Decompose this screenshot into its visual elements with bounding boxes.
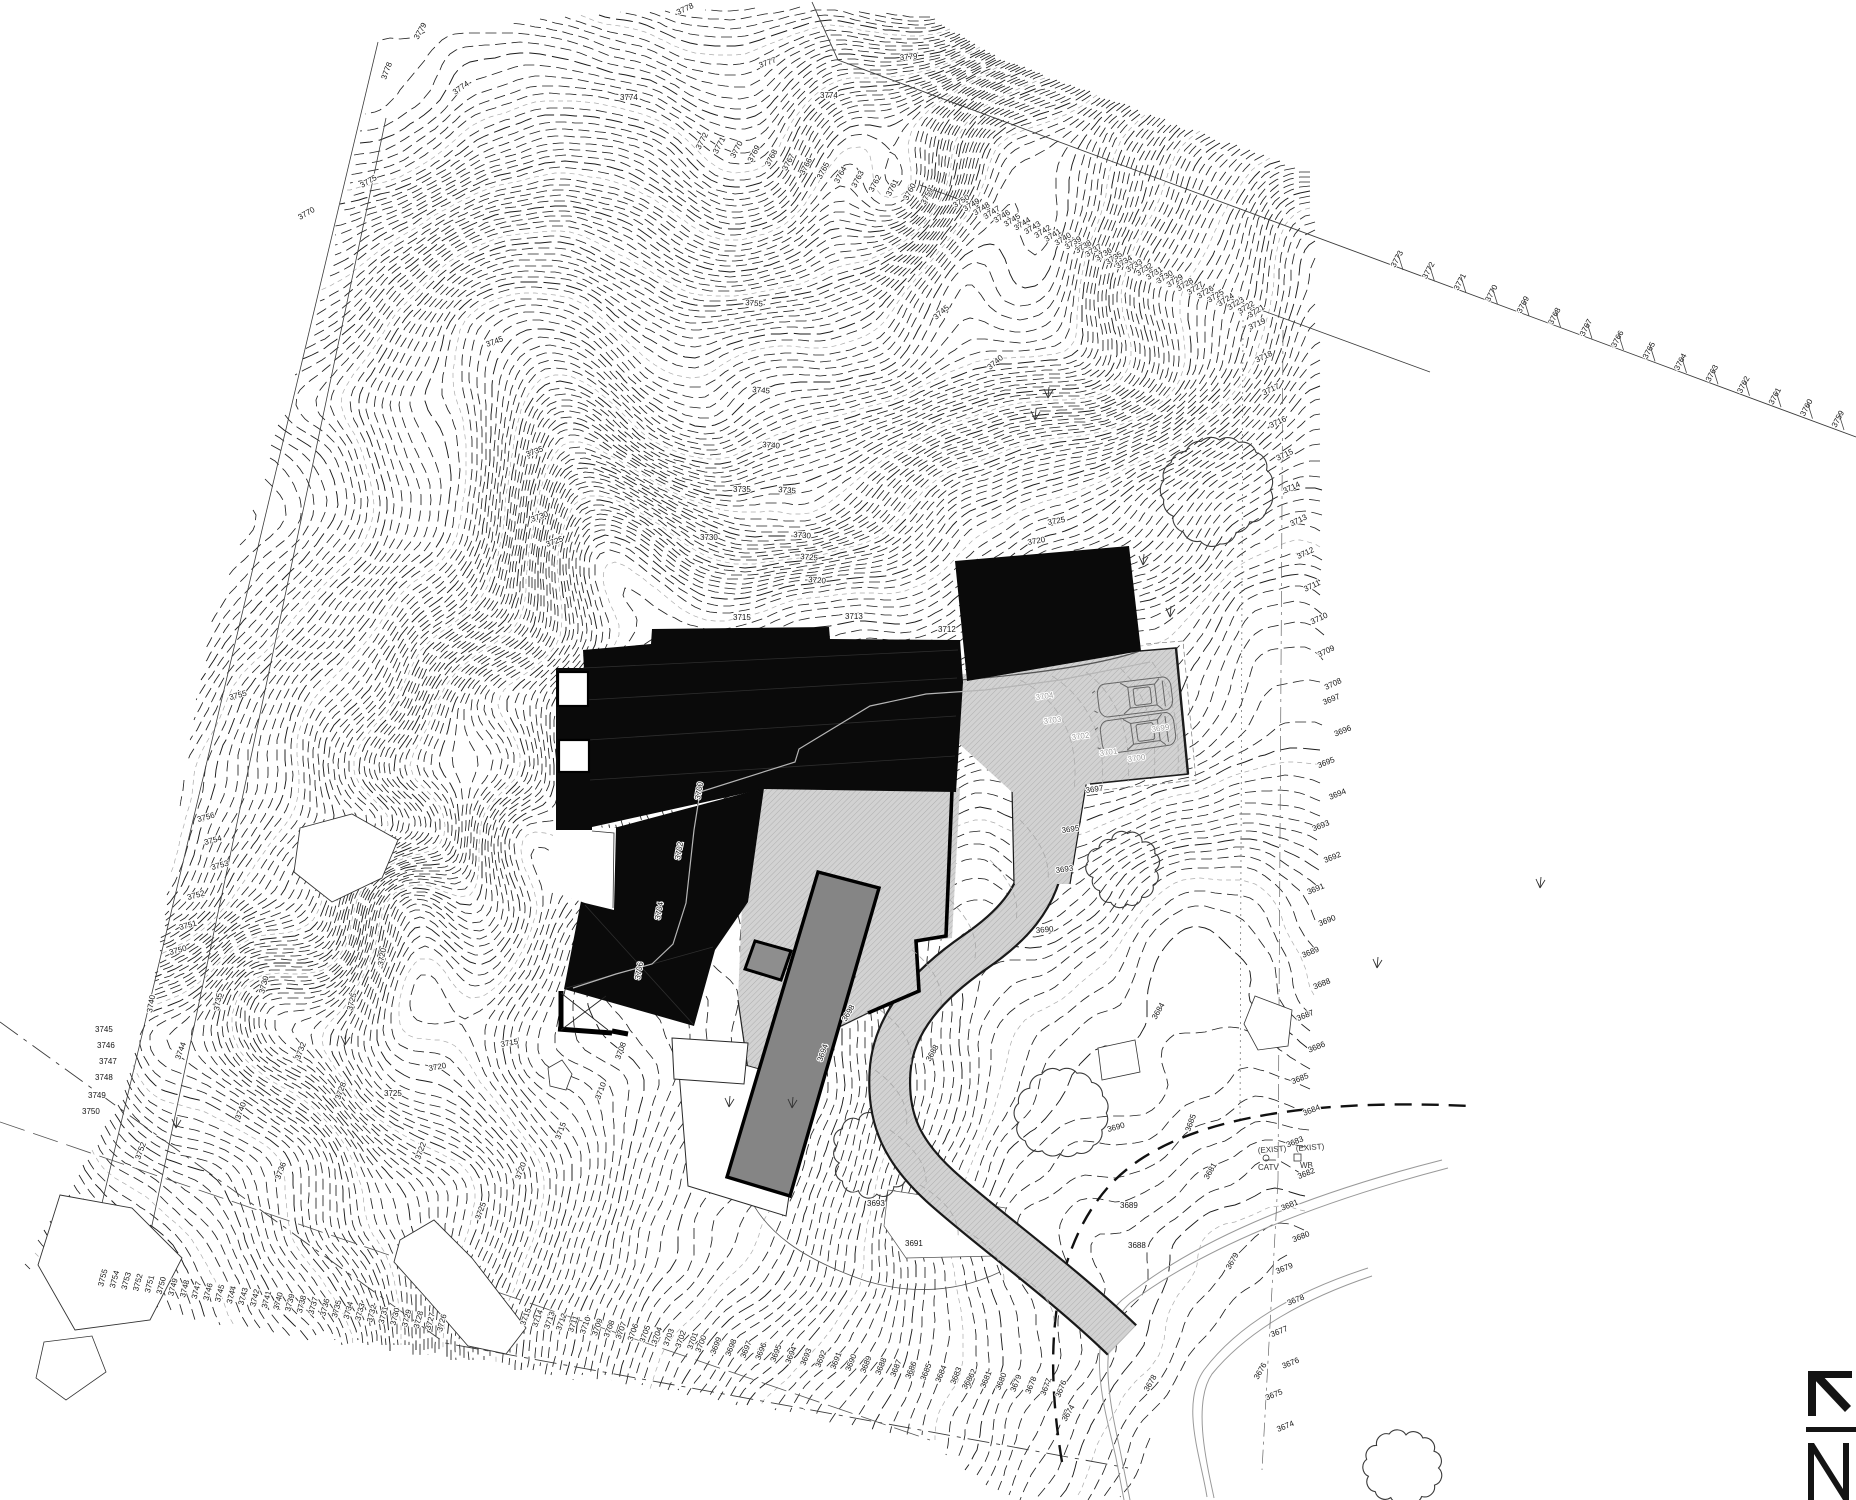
svg-text:3755: 3755 [745, 298, 764, 309]
svg-text:3691: 3691 [905, 1239, 923, 1248]
svg-text:3750: 3750 [82, 1107, 100, 1116]
svg-text:3779: 3779 [899, 51, 918, 62]
svg-text:3720: 3720 [808, 575, 827, 586]
svg-text:3712: 3712 [938, 625, 956, 634]
svg-text:3693: 3693 [867, 1199, 885, 1208]
svg-text:3725: 3725 [384, 1089, 402, 1098]
svg-text:3746: 3746 [97, 1041, 115, 1050]
svg-text:3735: 3735 [778, 485, 797, 496]
svg-text:3715: 3715 [733, 613, 751, 622]
svg-text:3689: 3689 [1120, 1201, 1138, 1210]
svg-text:3747: 3747 [99, 1057, 117, 1066]
svg-text:3774: 3774 [820, 91, 838, 100]
svg-text:CATV: CATV [1258, 1163, 1279, 1172]
svg-text:3745: 3745 [95, 1025, 113, 1034]
svg-text:3730: 3730 [793, 530, 812, 541]
svg-text:3725: 3725 [800, 552, 819, 563]
svg-text:3688: 3688 [1128, 1241, 1146, 1250]
svg-text:3745: 3745 [752, 385, 771, 396]
svg-text:3749: 3749 [88, 1091, 106, 1100]
svg-text:3730: 3730 [700, 533, 718, 542]
svg-text:3748: 3748 [95, 1073, 113, 1082]
svg-text:3774: 3774 [620, 93, 638, 102]
svg-text:3713: 3713 [845, 612, 863, 621]
svg-text:3690: 3690 [1035, 924, 1054, 935]
svg-text:3735: 3735 [733, 485, 751, 494]
svg-text:3740: 3740 [762, 440, 781, 451]
